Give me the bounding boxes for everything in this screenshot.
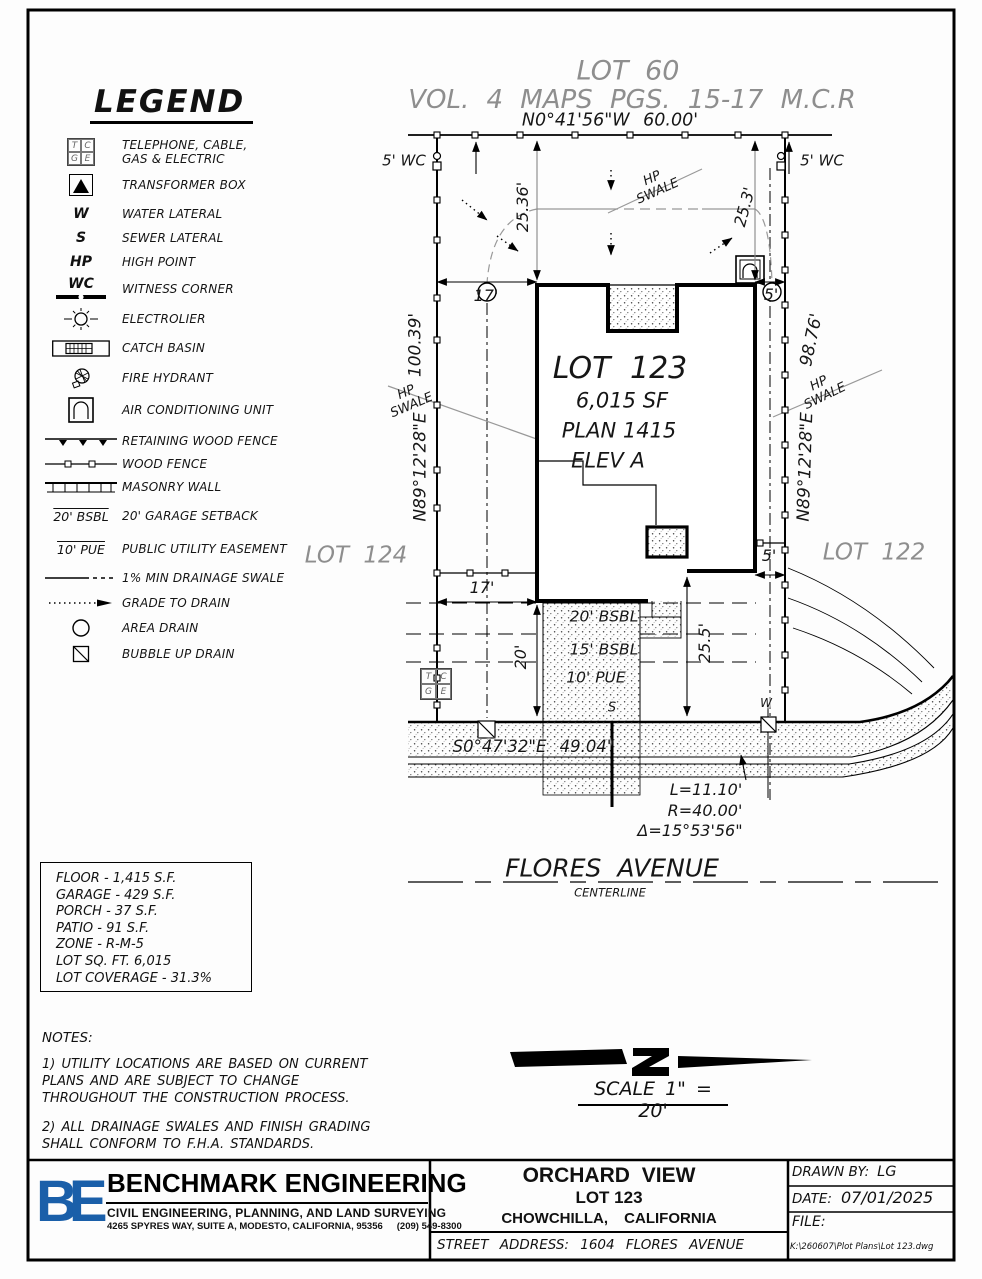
lot-plan-number: PLAN 1415 [562,421,677,442]
retaining-wood-fence-icon [45,435,117,447]
dim-front-setback: 20' [513,645,529,670]
bubble-up-drain-icon [72,645,90,663]
summary-lot-sqft: LOT SQ. FT. 6,015 [56,954,251,971]
date-label: DATE: [792,1191,832,1207]
drawn-by-label: DRAWN BY: [792,1164,869,1180]
setback-15-label: 15' BSBL [570,642,639,658]
legend-item-fire-hydrant: FIRE HYDRANT [40,367,348,389]
legend-label: FIRE HYDRANT [122,371,213,385]
note-2: 2) ALL DRAINAGE SWALES AND FINISH GRADIN… [42,1119,390,1153]
street-address: STREET ADDRESS: 1604 FLORES AVENUE [437,1237,744,1253]
lot-124-label: LOT 124 [305,545,407,568]
summary-zone: ZONE - R-M-5 [56,937,251,954]
legend-label: WATER LATERAL [122,207,222,221]
legend-label: WITNESS CORNER [122,282,234,296]
tcge-icon: TC GE [67,138,95,166]
pue-symbol: 10' PUE [57,542,105,557]
legend-item-masonry-wall: MASONRY WALL [40,478,348,496]
legend-label: AREA DRAIN [122,621,198,635]
legend-label: 20' GARAGE SETBACK [122,509,258,523]
water-lateral-symbol: W [73,206,88,222]
legend: LEGEND TC GE TELEPHONE, CABLE, GAS & ELE… [40,84,348,664]
witness-corner-icon [433,153,785,171]
drawn-by-row: DRAWN BY:LG [792,1164,897,1180]
grade-to-drain-icon [49,598,113,608]
pue-10-label: 10' PUE [566,670,625,686]
map-reference-volume: VOL. 4 MAPS PGS. 15-17 M.C.R [408,87,856,113]
legend-label: WOOD FENCE [122,457,207,471]
legend-item-water: W WATER LATERAL [40,204,348,224]
curve-delta-label: Δ=15°53'56" [637,823,742,839]
lot-area: 6,015 SF [576,391,668,412]
summary-floor: FLOOR - 1,415 S.F. [56,871,251,888]
legend-item-pue: 10' PUE PUBLIC UTILITY EASEMENT [40,538,348,560]
project-city: CHOWCHILLA, CALIFORNIA [430,1210,788,1227]
summary-coverage: LOT COVERAGE - 31.3% [56,971,251,988]
legend-item-retaining-fence: RETAINING WOOD FENCE [40,432,348,450]
drainage-swale-icon [45,575,117,581]
dim-rear-west: 25.36' [515,182,531,232]
fire-hydrant-icon [69,367,93,389]
file-path: K:\260607\Plot Plans\Lot 123.dwg [790,1242,933,1252]
bearing-east-boundary: N89°12'28"E [796,412,817,522]
dim-side-west-top: 17' [474,288,499,304]
tcge-icon: TC GE [420,668,452,700]
dim-side-east-bottom: 5' [762,548,777,564]
map-reference-lot: LOT 60 [577,58,680,85]
notes-section: NOTES: 1) UTILITY LOCATIONS ARE BASED ON… [42,1030,390,1165]
legend-item-bubble-up: BUBBLE UP DRAIN [40,644,348,664]
witness-corner-icon: WC [56,276,106,301]
legend-label: BUBBLE UP DRAIN [122,647,235,661]
summary-garage: GARAGE - 429 S.F. [56,888,251,905]
grade-arrows [462,170,732,255]
centerline-label: CENTERLINE [574,887,646,899]
legend-label: ELECTROLIER [122,312,206,326]
summary-porch: PORCH - 37 S.F. [56,904,251,921]
file-label: FILE: [792,1214,826,1230]
bearing-west-boundary: N89°12'28"E [413,412,430,521]
patio [610,287,675,330]
legend-item-catch-basin: CATCH BASIN [40,338,348,358]
notes-title: NOTES: [42,1030,390,1046]
legend-label: CATCH BASIN [122,341,205,355]
street-name: FLORES AVENUE [505,856,719,881]
legend-label: TELEPHONE, CABLE, GAS & ELECTRIC [122,138,272,166]
curve-radius-label: R=40.00' [668,803,743,819]
ac-unit-icon [68,397,94,423]
sewer-lateral-label: S [608,702,616,715]
area-drain-icon [71,618,91,638]
date-value: 07/01/2025 [841,1188,933,1207]
legend-label: HIGH POINT [122,255,195,269]
wood-fence-icon [45,459,117,469]
project-lot: LOT 123 [430,1188,788,1208]
legend-label: TRANSFORMER BOX [122,178,246,192]
legend-item-ac-unit: AIR CONDITIONING UNIT [40,397,348,423]
curve-length-label: L=11.10' [670,782,743,798]
lot-elevation: ELEV A [571,451,645,472]
legend-item-drainage-swale: 1% MIN DRAINAGE SWALE [40,570,348,586]
transformer-box-icon [69,174,93,196]
legend-item-witness-corner: WC WITNESS CORNER [40,275,348,302]
legend-label: AIR CONDITIONING UNIT [122,403,273,417]
note-1: 1) UTILITY LOCATIONS ARE BASED ON CURREN… [42,1056,390,1107]
plot-plan-page: LOT 60 VOL. 4 MAPS PGS. 15-17 M.C.R LEGE… [0,0,982,1279]
dim-west-boundary: 100.39' [408,313,425,377]
lot-name: LOT 123 [553,354,688,384]
dim-side-east-top: 5' [764,287,779,303]
legend-label: 1% MIN DRAINAGE SWALE [122,571,284,585]
legend-label: MASONRY WALL [122,480,221,494]
company-logo: BE [36,1168,99,1235]
legend-item-sewer: S SEWER LATERAL [40,228,348,248]
porch [647,527,687,557]
electrolier-icon [64,306,98,332]
scale-label: SCALE 1" = 20' [577,1078,729,1127]
legend-item-transformer: TRANSFORMER BOX [40,173,348,197]
company-services: CIVIL ENGINEERING, PLANNING, AND LAND SU… [107,1206,446,1220]
tcge-utility-box: TC GE [420,668,452,700]
legend-item-grade-to-drain: GRADE TO DRAIN [40,595,348,611]
sewer-lateral-symbol: S [76,230,86,246]
project-name: ORCHARD VIEW [430,1164,788,1188]
company-name: BENCHMARK ENGINEERING [107,1168,467,1199]
legend-label: RETAINING WOOD FENCE [122,434,278,448]
legend-item-electrolier: ELECTROLIER [40,306,348,332]
masonry-wall-icon [45,481,117,494]
legend-item-highpoint: HP HIGH POINT [40,252,348,272]
witness-corner-label-east: 5' WC [800,154,844,169]
legend-label: PUBLIC UTILITY EASEMENT [122,542,287,556]
area-summary-box: FLOOR - 1,415 S.F. GARAGE - 429 S.F. POR… [40,862,252,992]
legend-item-tcge: TC GE TELEPHONE, CABLE, GAS & ELECTRIC [40,136,348,168]
legend-item-garage-setback: 20' BSBL 20' GARAGE SETBACK [40,505,348,527]
dim-front-east: 25.5' [697,623,713,663]
catch-basin-icon [52,340,110,357]
legend-item-wood-fence: WOOD FENCE [40,455,348,473]
high-point-symbol: HP [70,254,92,270]
bsbl-symbol: 20' BSBL [53,509,108,524]
legend-title: LEGEND [90,84,253,124]
north-boundary-bearing: N0°41'56"W 60.00' [522,112,698,130]
legend-label: SEWER LATERAL [122,231,224,245]
legend-label: GRADE TO DRAIN [122,596,230,610]
scale-bar [510,1048,812,1076]
setback-20-label: 20' BSBL [570,609,639,625]
witness-corner-label-west: 5' WC [382,154,426,169]
water-lateral-label: W [760,697,772,709]
lot-122-label: LOT 122 [823,542,925,565]
company-address-line: 4265 SPYRES WAY, SUITE A, MODESTO, CALIF… [107,1221,462,1232]
dim-side-west-bottom: 17' [470,580,495,596]
summary-patio: PATIO - 91 S.F. [56,921,251,938]
company-address: 4265 SPYRES WAY, SUITE A, MODESTO, CALIF… [107,1221,383,1232]
front-boundary-bearing: S0°47'32"E 49.04' [453,739,612,756]
date-row: DATE:07/01/2025 [792,1188,933,1207]
drawn-by-value: LG [877,1164,896,1180]
legend-item-area-drain: AREA DRAIN [40,618,348,638]
ac-unit-icon [736,256,764,283]
